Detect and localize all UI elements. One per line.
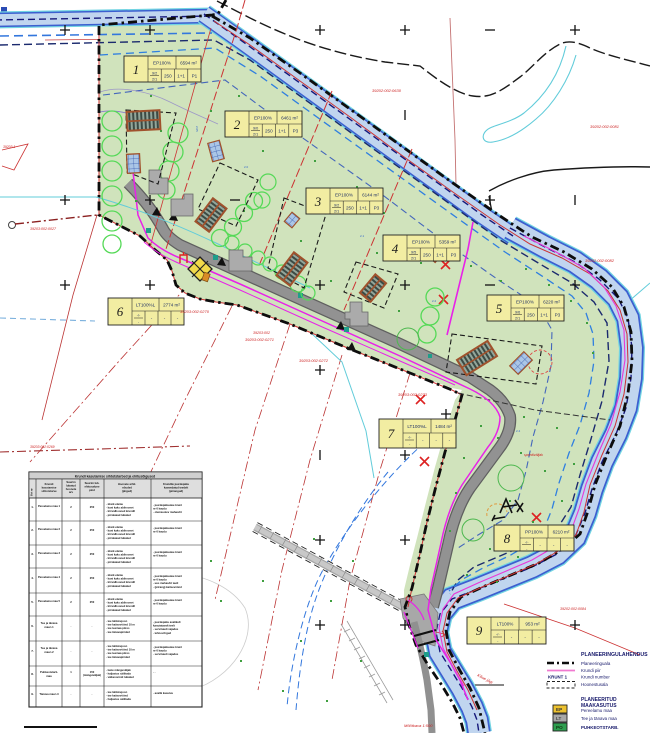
svg-text:LT100%L: LT100%L [136,303,156,308]
svg-text:ehitusalune: ehitusalune [85,484,100,488]
svg-text:- kuni kaks abihoonet: - kuni kaks abihoonet [106,577,134,581]
svg-text:Hoonete arhit.: Hoonete arhit. [118,482,136,486]
svg-text:8: 8 [504,531,511,546]
svg-text:6461 m²: 6461 m² [281,116,298,121]
svg-text:953 m²: 953 m² [525,622,540,627]
svg-text:1: 1 [133,62,140,77]
svg-text:2.4: 2.4 [516,429,521,433]
svg-text:- tee teemaa piires: - tee teemaa piires [106,626,130,630]
svg-text:Tee ja tänava: Tee ja tänava [41,646,58,650]
svg-text:- kõrvalhooned krundil: - kõrvalhooned krundil [106,532,135,536]
svg-text:- juurdepääs avalikult: - juurdepääs avalikult [153,620,181,624]
svg-text:Pereelamu maa 2: Pereelamu maa 2 [38,527,60,531]
svg-text:EP100%: EP100% [153,61,171,66]
svg-text:Pereelamu maa 1: Pereelamu maa 1 [38,504,60,508]
svg-text:LT100%: LT100% [497,622,514,627]
svg-text:Suurim: Suurim [66,480,76,484]
svg-text:- servituudi vajadus: - servituudi vajadus [153,627,179,631]
svg-text:9/0: 9/0 [253,127,258,131]
svg-text:- juurdepääsutee krunt: - juurdepääsutee krunt [153,503,182,507]
svg-text:LT100%L: LT100%L [407,424,427,429]
svg-text:nr 6 kaudu: nr 6 kaudu [153,507,167,511]
svg-text:lubatud: lubatud [66,483,76,487]
svg-text:Pereelamu maa 3: Pereelamu maa 3 [38,551,60,555]
svg-text:39202:002:0630: 39202:002:0630 [372,88,402,93]
svg-text:EP: EP [556,707,562,712]
svg-text:- üksik elamu: - üksik elamu [106,573,123,577]
svg-text:39203:002:0027: 39203:002:0027 [30,227,57,231]
svg-text:- kõrvalhooned krundil: - kõrvalhooned krundil [106,556,135,560]
svg-text:- piirdeaiad lubatud: - piirdeaiad lubatud [106,536,131,540]
svg-text:6: 6 [117,304,124,319]
svg-text:-: - [71,693,72,696]
svg-text:-: - [92,650,93,653]
svg-text:- üksik elamu: - üksik elamu [106,549,123,553]
svg-text:Tee ja tänava maa: Tee ja tänava maa [581,716,617,721]
svg-text:EP100%: EP100% [335,193,353,198]
svg-text:Suurim lub.: Suurim lub. [85,481,100,485]
svg-text:250: 250 [90,576,95,580]
svg-text:250: 250 [265,129,273,134]
svg-text:3.: 3. [31,552,34,556]
svg-text:- avalik kasutus: - avalik kasutus [153,691,174,695]
svg-text:- juurdepääsutee krunt: - juurdepääsutee krunt [153,645,182,649]
svg-text:2/1: 2/1 [152,78,157,82]
svg-text:Krundi piir: Krundi piir [581,668,601,673]
svg-text:- juurdepääsutee krunt: - juurdepääsutee krunt [153,526,182,530]
svg-text:PUHKEOTSTARB.: PUHKEOTSTARB. [581,725,618,730]
svg-text:250: 250 [423,253,431,258]
svg-text:5.: 5. [31,600,34,604]
svg-text:1+1: 1+1 [436,253,444,258]
svg-text:P3: P3 [293,129,299,134]
svg-text:Tee ja tänava: Tee ja tänava [41,621,58,625]
svg-text:nr 6 kaudu: nr 6 kaudu [153,530,167,534]
svg-text:- uus mahasõit teelt: - uus mahasõit teelt [153,581,178,585]
svg-text:arv: arv [69,490,74,494]
svg-text:250: 250 [346,206,354,211]
svg-text:5359 m²: 5359 m² [439,240,456,245]
svg-text:7.: 7. [31,649,34,653]
svg-text:3: 3 [314,194,322,209]
svg-text:- kõrvalhooned krundil: - kõrvalhooned krundil [106,580,135,584]
svg-text:- juurdepääsutee krunt: - juurdepääsutee krunt [153,598,182,602]
svg-text:2: 2 [234,117,241,132]
svg-text:250: 250 [527,313,535,318]
svg-text:Planeeringuala: Planeeringuala [581,661,611,666]
svg-text:39203:002:0271: 39203:002:0271 [245,337,274,342]
svg-text:nr 6 kaudu: nr 6 kaudu [153,649,167,653]
svg-text:9/2: 9/2 [152,72,157,76]
svg-text:- kuni kaks abihoonet: - kuni kaks abihoonet [106,506,134,510]
svg-text:1+1: 1+1 [540,313,548,318]
svg-text:-: - [71,650,72,653]
svg-text:- tehnovõrgud: - tehnovõrgud [153,631,171,635]
svg-text:Tänava maa L3: Tänava maa L3 [39,692,59,696]
svg-text:Pereelamu maa 4: Pereelamu maa 4 [38,575,60,579]
svg-text:2.: 2. [31,528,34,532]
svg-text:Krundi: Krundi [45,482,54,486]
svg-text:PO: PO [556,725,563,730]
svg-text:2/1: 2/1 [253,133,258,137]
svg-text:- tee tänavapiirded: - tee tänavapiirded [106,630,130,634]
svg-text:- servituudi vajadus: - servituudi vajadus [153,652,179,656]
svg-text:39202:002:0084: 39202:002:0084 [560,607,586,611]
svg-text:- piirdeaiad lubatud: - piirdeaiad lubatud [106,513,131,517]
svg-text:PP100%: PP100% [525,530,543,535]
svg-text:9: 9 [476,623,483,638]
svg-text:- kuni kaks abihoonet: - kuni kaks abihoonet [106,529,134,533]
svg-text:39203:002:0273: 39203:002:0273 [398,392,428,397]
svg-text:maa L1: maa L1 [44,625,54,629]
svg-text:4: 4 [392,241,399,256]
svg-text:- tee tänavapiirded: - tee tänavapiirded [106,655,130,659]
svg-text:250: 250 [90,600,95,604]
svg-text:- tee kaitsevöönd 10 m: - tee kaitsevöönd 10 m [106,648,135,652]
svg-text:1484 m²: 1484 m² [435,424,452,429]
svg-text:1+1: 1+1 [359,206,367,211]
svg-text:maa L2: maa L2 [44,650,54,654]
svg-text:1+1: 1+1 [177,74,185,79]
svg-text:- tee kaitsevöönd: - tee kaitsevöönd [106,694,128,698]
svg-text:kavandatud teedelt: kavandatud teedelt [164,485,188,489]
svg-text:8.: 8. [31,672,34,676]
svg-text:7: 7 [388,426,395,441]
svg-text:- üksik elamu: - üksik elamu [106,525,123,529]
svg-text:6144 m²: 6144 m² [362,193,379,198]
svg-text:- tee lahkmejoon: - tee lahkmejoon [106,690,128,694]
svg-text:(järgud): (järgud) [122,489,132,493]
svg-text:- tee kaitsevöönd 10 m: - tee kaitsevöönd 10 m [106,623,135,627]
svg-text:39203:1: 39203:1 [3,145,15,149]
svg-text:2/1: 2/1 [411,257,416,261]
svg-text:6594 m²: 6594 m² [180,61,197,66]
svg-text:- haljastus säilitada: - haljastus säilitada [106,672,131,676]
svg-text:9.: 9. [31,692,34,696]
svg-text:EP100%: EP100% [254,116,272,121]
svg-text:2.2: 2.2 [432,299,437,303]
svg-text:EP100%: EP100% [516,300,534,305]
svg-text:PLANEERINGULAHENDUS: PLANEERINGULAHENDUS [581,652,648,658]
svg-text:- piirdeaiad lubatud: - piirdeaiad lubatud [106,560,131,564]
svg-text:Hoonestusala: Hoonestusala [581,682,608,687]
svg-text:2/1: 2/1 [515,317,520,321]
svg-text:hoonete: hoonete [66,487,77,491]
svg-text:spordiväljak: spordiväljak [524,453,543,457]
svg-text:Puhkeotstarb.: Puhkeotstarb. [40,670,58,674]
svg-text:- juurdepääsutee krunt: - juurdepääsutee krunt [153,574,182,578]
svg-text:Mõõtkava 1:500: Mõõtkava 1:500 [404,723,433,728]
svg-text:9/6: 9/6 [515,311,520,315]
svg-text:Krundi kasutamise sihtotstarbe: Krundi kasutamise sihtotstarbed ja ehitu… [75,474,155,478]
svg-text:- (piirang) kaitsevöönd: - (piirang) kaitsevöönd [153,585,182,589]
svg-text:- olemasolev mahasõit: - olemasolev mahasõit [153,510,182,514]
svg-text:sihtotstarve: sihtotstarve [41,489,57,493]
svg-text:- üksik elamu: - üksik elamu [106,502,123,506]
svg-text:Pereelamu maa 5: Pereelamu maa 5 [38,599,60,603]
svg-text:39203:002: 39203:002 [253,331,270,335]
svg-text:Krt nr: Krt nr [30,488,34,495]
svg-text:2.05: 2.05 [195,126,199,132]
svg-text:39203:002:0272: 39203:002:0272 [299,358,329,363]
svg-text:EP100%: EP100% [412,240,430,245]
svg-text:- piirdeaiad lubatud: - piirdeaiad lubatud [106,608,131,612]
svg-text:39203:002:0270: 39203:002:0270 [180,309,210,314]
svg-text:- laste mänguväljak: - laste mänguväljak [106,668,131,672]
svg-text:6.: 6. [31,624,34,628]
svg-text:2.0: 2.0 [244,165,249,169]
svg-text:9/5: 9/5 [411,251,416,255]
svg-text:6210 m²: 6210 m² [553,530,570,535]
svg-text:- tee lahkmejoon: - tee lahkmejoon [106,644,128,648]
svg-text:Pereelamu maa: Pereelamu maa [581,708,613,713]
svg-text:- piirdeaiad lubatud: - piirdeaiad lubatud [106,584,131,588]
svg-text:2774 m²: 2774 m² [163,303,180,308]
svg-text:kasutatavalt teelt: kasutatavalt teelt [153,624,175,628]
svg-text:250: 250 [90,505,95,509]
svg-text:- üksik elamu: - üksik elamu [106,597,123,601]
svg-text:- haljastus säilitada: - haljastus säilitada [106,697,131,701]
svg-text:- tee teemaa piires: - tee teemaa piires [106,651,130,655]
svg-text:6220 m²: 6220 m² [543,300,560,305]
svg-text:- kuni kaks abihoonet: - kuni kaks abihoonet [106,553,134,557]
svg-text:2.1: 2.1 [360,234,365,238]
svg-text:1.: 1. [31,505,34,509]
svg-text:1+1: 1+1 [278,129,286,134]
svg-text:39202:002:0082: 39202:002:0082 [585,258,615,263]
svg-text:kasutamise: kasutamise [42,485,57,489]
svg-text:- väikevormid lubatud: - väikevormid lubatud [106,675,134,679]
svg-text:4.: 4. [31,576,34,580]
svg-text:nr 6 kaudu: nr 6 kaudu [153,554,167,558]
svg-text:250: 250 [164,74,172,79]
svg-text:- juurdepääsutee krunt: - juurdepääsutee krunt [153,550,182,554]
svg-text:2/1: 2/1 [334,210,339,214]
svg-text:- -: - - [153,671,156,674]
svg-text:pind: pind [89,488,95,492]
svg-text:-: - [92,693,93,696]
svg-text:Krundile juurdepääs: Krundile juurdepääs [163,482,189,486]
svg-text:P1: P1 [192,74,198,79]
svg-text:P3: P3 [555,313,561,318]
svg-text:nr 6 kaudu: nr 6 kaudu [153,602,167,606]
svg-text:-: - [92,625,93,628]
svg-text:(mänguväljak): (mänguväljak) [83,673,101,677]
svg-text:9/2: 9/2 [334,204,339,208]
svg-text:(piirangud): (piirangud) [169,489,183,493]
svg-text:P3: P3 [451,253,457,258]
svg-text:-: - [71,625,72,628]
svg-text:P3: P3 [374,206,380,211]
svg-text:250: 250 [90,528,95,532]
svg-text:- kõrvalhooned krundil: - kõrvalhooned krundil [106,509,135,513]
svg-text:Krundi number: Krundi number [581,675,610,680]
svg-text:5: 5 [496,301,503,316]
svg-text:39203:002:0269: 39203:002:0269 [30,445,55,449]
svg-text:LT: LT [556,716,561,721]
svg-text:nõuded: nõuded [122,485,132,489]
svg-text:250: 250 [90,552,95,556]
svg-text:- kuni kaks abihoonet: - kuni kaks abihoonet [106,601,134,605]
svg-text:- kõrvalhooned krundil: - kõrvalhooned krundil [106,604,135,608]
svg-text:- tee lahkmejoon: - tee lahkmejoon [106,619,128,623]
svg-text:39202:002:0081: 39202:002:0081 [590,124,619,129]
svg-text:nr 6 kaudu: nr 6 kaudu [153,578,167,582]
svg-text:maa: maa [46,675,52,678]
svg-text:KRUNT 1: KRUNT 1 [548,675,568,680]
